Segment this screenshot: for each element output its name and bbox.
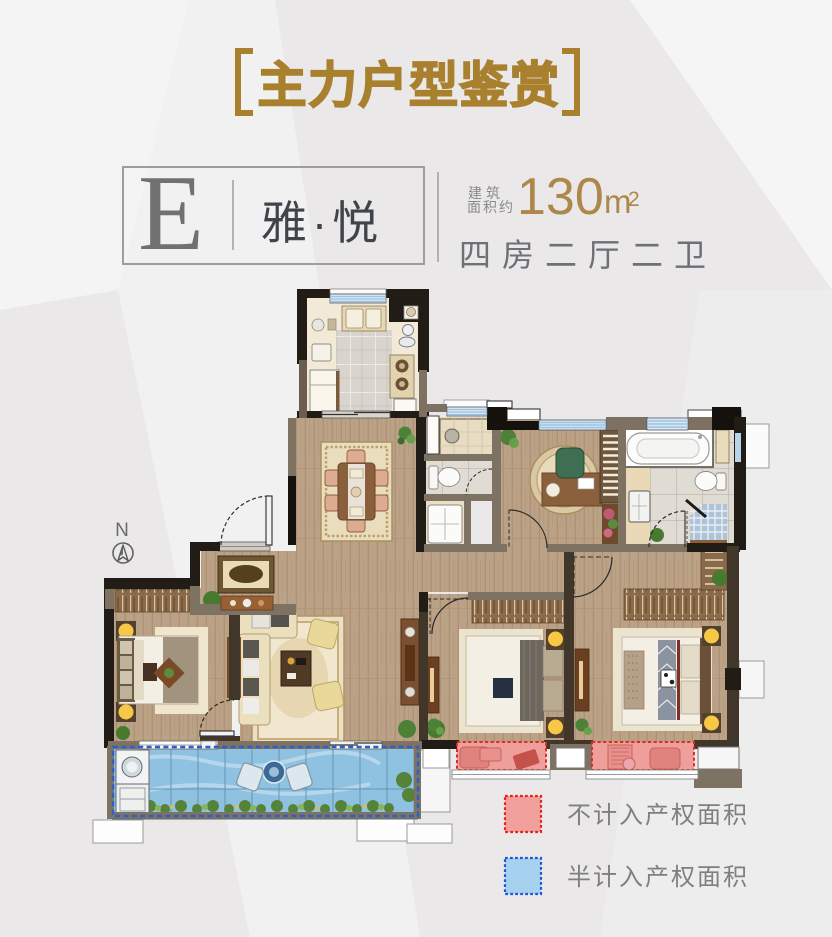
svg-text:N: N <box>115 520 129 541</box>
svg-text:雅·悦: 雅·悦 <box>261 197 383 249</box>
svg-text:2: 2 <box>628 188 640 211</box>
svg-text:130: 130 <box>517 168 604 226</box>
svg-text:四房二厅二卫: 四房二厅二卫 <box>459 237 717 273</box>
svg-text:主力户型鉴赏: 主力户型鉴赏 <box>257 59 560 113</box>
svg-text:半计入产权面积: 半计入产权面积 <box>567 864 749 891</box>
svg-text:不计入产权面积: 不计入产权面积 <box>567 802 749 829</box>
svg-text:E: E <box>138 154 204 273</box>
svg-text:面积约: 面积约 <box>467 199 515 215</box>
